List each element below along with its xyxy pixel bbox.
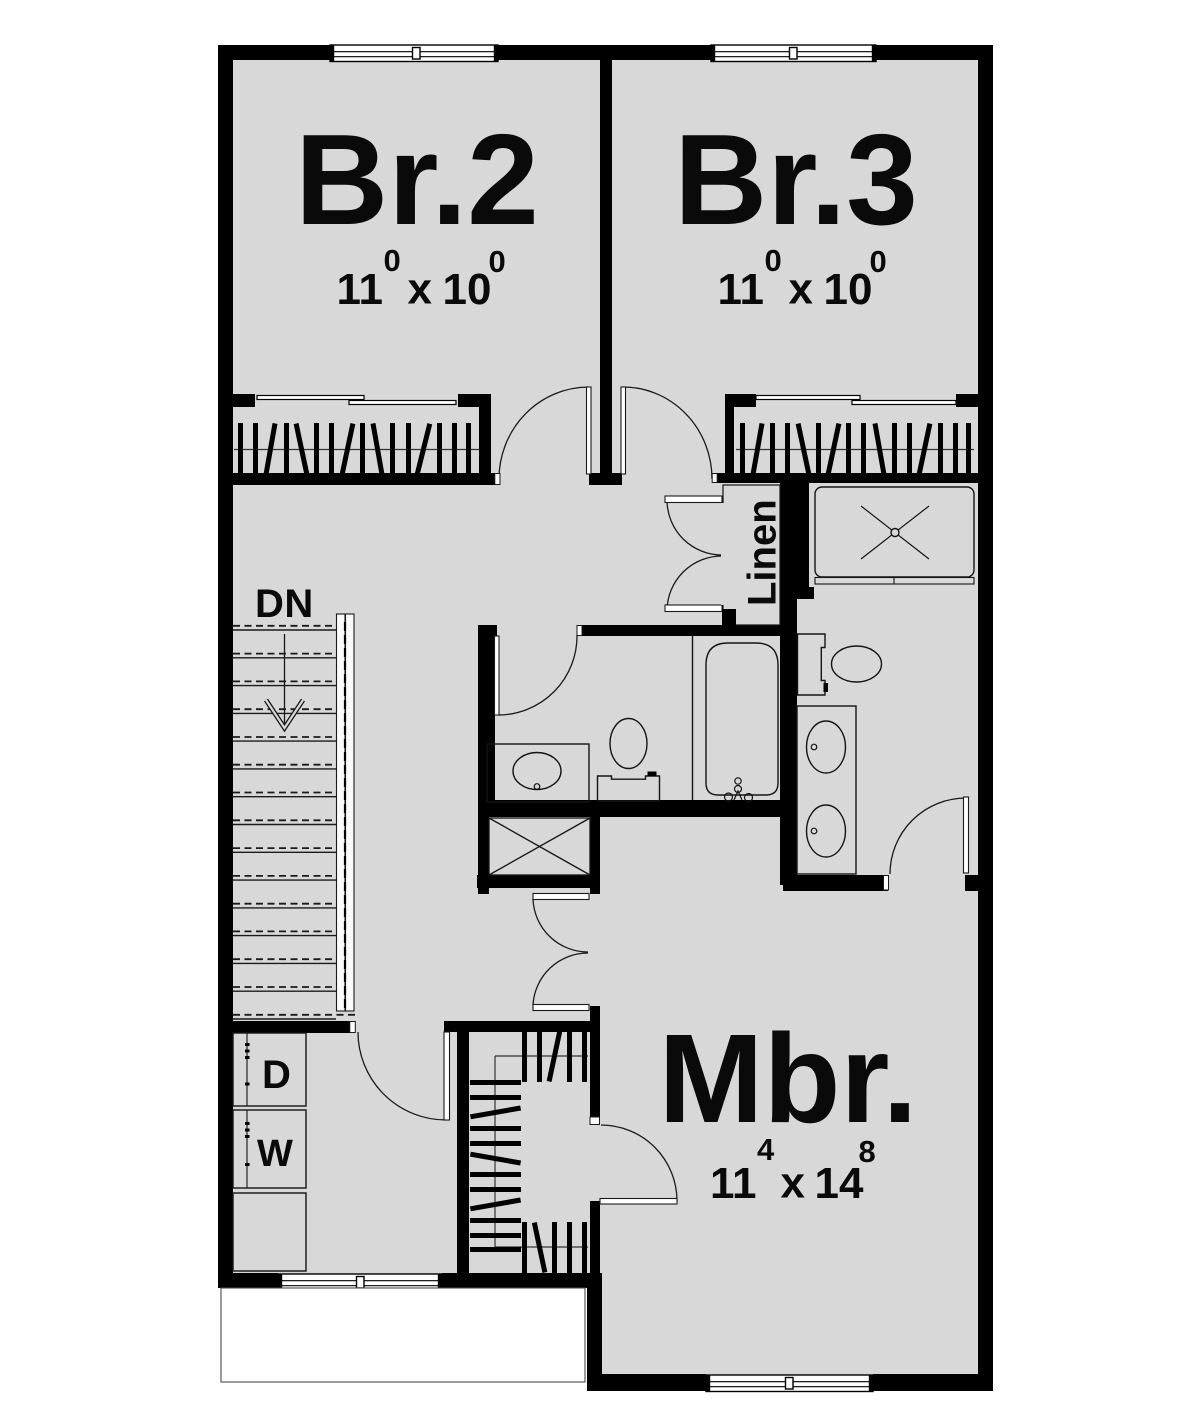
svg-text:W: W: [257, 1133, 293, 1175]
svg-text:x: x: [781, 1159, 806, 1208]
svg-text:0: 0: [870, 244, 887, 279]
svg-text:10: 10: [824, 265, 873, 314]
svg-text:D: D: [262, 1053, 291, 1097]
svg-text:11: 11: [710, 1159, 757, 1208]
svg-text:Br.3: Br.3: [674, 108, 918, 252]
svg-text:x: x: [789, 265, 814, 314]
svg-text:10: 10: [443, 265, 492, 314]
svg-text:0: 0: [489, 244, 506, 279]
svg-text:Linen: Linen: [741, 499, 785, 606]
svg-text:Mbr.: Mbr.: [658, 1008, 917, 1149]
svg-text:Br.2: Br.2: [295, 108, 539, 252]
svg-text:x: x: [408, 265, 433, 314]
svg-text:0: 0: [765, 243, 782, 278]
svg-text:11: 11: [718, 265, 765, 314]
svg-text:4: 4: [757, 1132, 775, 1167]
svg-text:11: 11: [337, 265, 384, 314]
svg-text:0: 0: [384, 243, 401, 278]
svg-text:DN: DN: [255, 582, 314, 626]
svg-text:14: 14: [815, 1159, 864, 1208]
svg-text:8: 8: [859, 1134, 876, 1169]
